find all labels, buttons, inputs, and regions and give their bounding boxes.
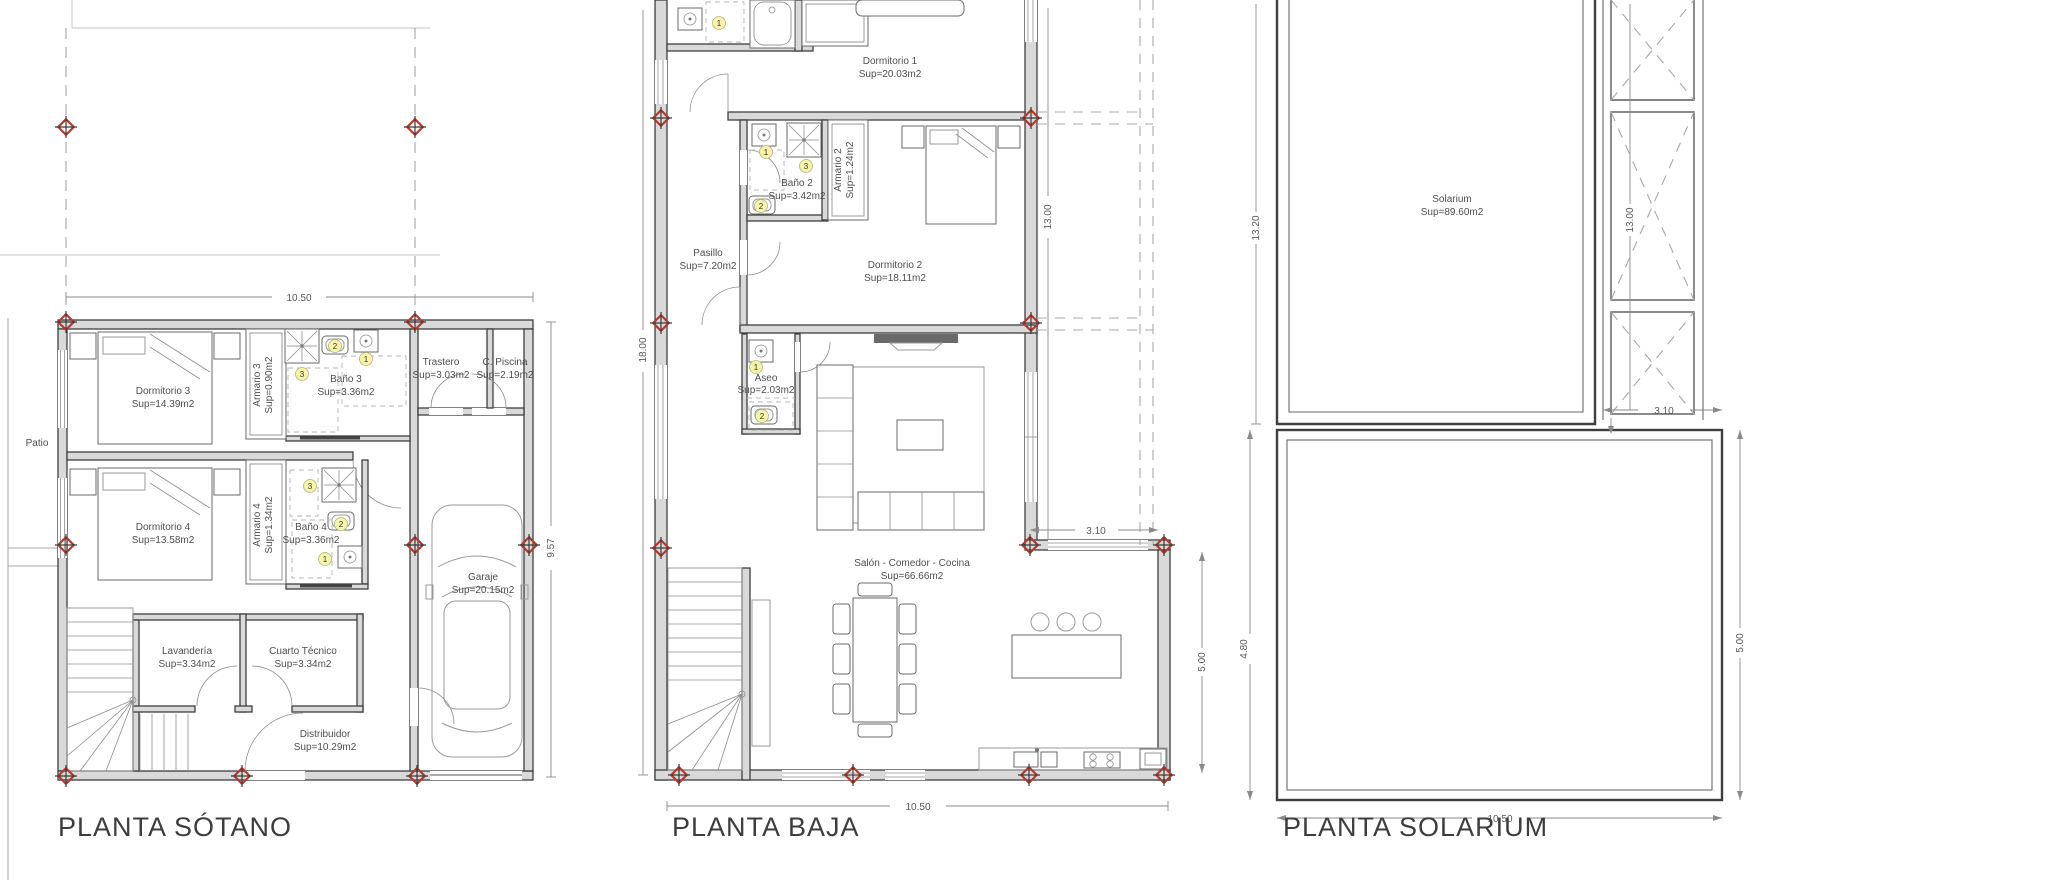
room-label: Trastero bbox=[423, 357, 460, 368]
room-label: Solarium bbox=[1432, 194, 1471, 205]
dim-label: 3.10 bbox=[1654, 406, 1674, 417]
room-area: Sup=2.19m2 bbox=[477, 370, 534, 381]
floor-plan-sheet: 3 2 1 3 2 1 Patio Dormitorio 3 Sup=14.39… bbox=[0, 0, 2048, 880]
dim-label: 10.50 bbox=[286, 293, 311, 304]
room-area: Sup=3.03m2 bbox=[413, 370, 470, 381]
bed-foot-dormitorio-1 bbox=[856, 0, 964, 16]
fixture-marker-1-icon: 1 bbox=[760, 146, 773, 159]
fixture-marker-3-icon: 3 bbox=[304, 480, 317, 493]
svg-text:1: 1 bbox=[364, 355, 369, 364]
dining-furniture bbox=[833, 583, 916, 737]
room-label: Aseo bbox=[755, 373, 778, 384]
svg-text:2: 2 bbox=[760, 412, 765, 421]
room-label: Baño 3 bbox=[330, 374, 362, 385]
dim-label: 13.20 bbox=[1251, 215, 1262, 240]
fixture-marker-1-icon: 1 bbox=[360, 353, 373, 366]
room-label: Armario 3 bbox=[252, 363, 263, 407]
room-area: Sup=0.90m2 bbox=[264, 356, 275, 413]
fixture-marker-1-icon: 1 bbox=[319, 553, 332, 566]
svg-text:1: 1 bbox=[754, 363, 759, 372]
svg-text:2: 2 bbox=[333, 342, 338, 351]
room-label: Pasillo bbox=[693, 248, 723, 259]
dim-label: 10.50 bbox=[905, 802, 930, 813]
dimensions-solarium: 13.20 13.00 3.10 4.80 5.00 10.50 bbox=[1239, 4, 1746, 825]
dashed-overhang-outline bbox=[1037, 0, 1153, 545]
room-label: Dormitorio 3 bbox=[136, 386, 191, 397]
car-garaje bbox=[426, 505, 528, 757]
fixture-marker-2-icon: 2 bbox=[755, 200, 768, 213]
room-area: Sup=3.34m2 bbox=[159, 659, 216, 670]
plan-sotano: 3 2 1 3 2 1 Patio Dormitorio 3 Sup=14.39… bbox=[0, 0, 557, 880]
room-area: Sup=18.11m2 bbox=[864, 273, 926, 284]
room-area: Sup=20.15m2 bbox=[452, 585, 515, 596]
room-area: Sup=10.29m2 bbox=[294, 742, 357, 753]
dim-label: 5.00 bbox=[1735, 633, 1746, 653]
room-area: Sup=89.60m2 bbox=[1421, 207, 1484, 218]
svg-text:1: 1 bbox=[764, 148, 769, 157]
dim-label: 13.00 bbox=[1043, 204, 1054, 229]
terrace-walls bbox=[1277, 430, 1722, 800]
room-area: Sup=66.66m2 bbox=[881, 571, 944, 582]
plan-title-solarium: PLANTA SOLARIUM bbox=[1283, 812, 1548, 842]
room-label: Armario 4 bbox=[252, 503, 263, 547]
plan-title-sotano: PLANTA SÓTANO bbox=[58, 811, 292, 842]
bed-dormitorio-2 bbox=[902, 126, 1020, 224]
fixture-marker-2-icon: 2 bbox=[329, 340, 342, 353]
room-label: Lavandería bbox=[162, 646, 212, 657]
room-label: Cuarto Técnico bbox=[269, 646, 337, 657]
dim-label: 4.80 bbox=[1239, 639, 1250, 659]
room-area: Sup=3.34m2 bbox=[275, 659, 332, 670]
fixture-marker-1-icon: 1 bbox=[750, 361, 763, 374]
svg-text:1: 1 bbox=[323, 555, 328, 564]
room-label: Garaje bbox=[468, 572, 498, 583]
svg-text:3: 3 bbox=[300, 370, 305, 379]
svg-text:3: 3 bbox=[804, 162, 809, 171]
svg-text:2: 2 bbox=[759, 202, 764, 211]
dim-label: 13.00 bbox=[1625, 207, 1636, 232]
room-area: Sup=1.24m2 bbox=[845, 141, 856, 198]
fixture-marker-2-icon: 2 bbox=[756, 410, 769, 423]
plan-title-baja: PLANTA BAJA bbox=[672, 812, 860, 842]
room-area: Sup=13.58m2 bbox=[132, 535, 195, 546]
room-area: Sup=20.03m2 bbox=[859, 69, 922, 80]
room-area: Sup=1.34m2 bbox=[264, 496, 275, 553]
room-label: Dormitorio 2 bbox=[868, 260, 923, 271]
room-area: Sup=14.39m2 bbox=[132, 399, 195, 410]
room-label: C. Piscina bbox=[482, 357, 527, 368]
stair-void-strip bbox=[1603, 0, 1703, 420]
room-area: Sup=3.42m2 bbox=[769, 191, 826, 202]
room-label: Dormitorio 4 bbox=[136, 522, 191, 533]
room-area: Sup=3.36m2 bbox=[283, 535, 340, 546]
room-labels-solarium: Solarium Sup=89.60m2 bbox=[1421, 194, 1484, 218]
room-area: Sup=2.03m2 bbox=[738, 385, 795, 396]
room-label: Baño 2 bbox=[781, 178, 813, 189]
plan-baja: 1 1 3 2 1 2 Dormitorio 1 Sup=20.03m2 Bañ… bbox=[638, 0, 1208, 842]
svg-text:3: 3 bbox=[308, 482, 313, 491]
fixture-marker-1-icon: 1 bbox=[713, 17, 726, 30]
svg-text:1: 1 bbox=[717, 19, 722, 28]
dim-label: 3.10 bbox=[1086, 526, 1106, 537]
room-area: Sup=7.20m2 bbox=[680, 261, 737, 272]
room-area: Sup=3.36m2 bbox=[318, 387, 375, 398]
fixture-marker-2-icon: 2 bbox=[335, 518, 348, 531]
dim-label: 18.00 bbox=[638, 337, 649, 362]
stairs-baja bbox=[668, 568, 745, 770]
bathroom-1-fixtures bbox=[678, 0, 795, 48]
svg-text:2: 2 bbox=[339, 520, 344, 529]
room-label: Baño 4 bbox=[295, 522, 327, 533]
fixture-marker-3-icon: 3 bbox=[800, 160, 813, 173]
room-label: Distribuidor bbox=[300, 729, 351, 740]
dim-label: 9.57 bbox=[546, 538, 557, 558]
dim-label: 5.00 bbox=[1197, 652, 1208, 672]
patio-label: Patio bbox=[26, 438, 49, 449]
stairs-sotano bbox=[67, 608, 188, 771]
kitchen-furniture bbox=[979, 613, 1167, 770]
room-label: Dormitorio 1 bbox=[863, 56, 918, 67]
living-room-furniture bbox=[817, 334, 984, 530]
fixture-marker-3-icon: 3 bbox=[296, 368, 309, 381]
room-label: Armario 2 bbox=[833, 148, 844, 192]
room-label: Salón - Comedor - Cocina bbox=[854, 558, 970, 569]
plan-solarium: Solarium Sup=89.60m2 13.20 13.00 3.10 4.… bbox=[1239, 0, 1746, 842]
